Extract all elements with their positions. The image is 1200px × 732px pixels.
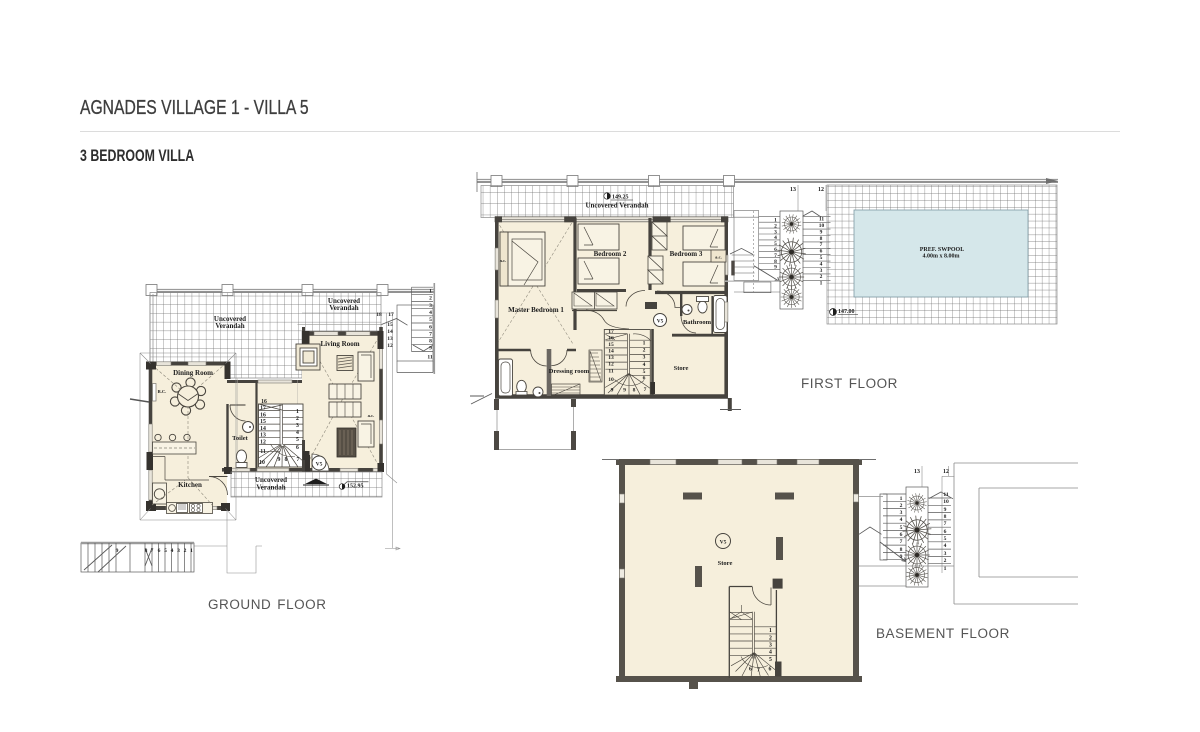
svg-text:15: 15 — [608, 342, 614, 348]
svg-text:13: 13 — [608, 355, 614, 361]
svg-text:2: 2 — [944, 558, 947, 564]
svg-text:14: 14 — [387, 329, 393, 335]
svg-text:15: 15 — [260, 419, 266, 425]
svg-text:1: 1 — [190, 548, 193, 554]
svg-text:Verandah: Verandah — [215, 322, 244, 330]
svg-text:1: 1 — [769, 628, 772, 634]
svg-text:V5: V5 — [657, 319, 664, 325]
svg-text:9: 9 — [944, 507, 947, 513]
svg-text:10: 10 — [259, 460, 265, 466]
svg-text:9: 9 — [429, 346, 432, 352]
svg-text:2: 2 — [643, 348, 646, 354]
svg-text:3: 3 — [900, 510, 903, 516]
svg-text:11: 11 — [943, 492, 948, 498]
svg-text:3: 3 — [177, 548, 180, 554]
svg-text:1: 1 — [429, 289, 432, 295]
svg-text:9: 9 — [820, 229, 823, 235]
svg-text:9: 9 — [774, 265, 777, 271]
svg-text:4: 4 — [429, 310, 432, 316]
svg-text:4: 4 — [643, 362, 646, 368]
svg-text:3: 3 — [643, 355, 646, 361]
svg-text:a.c.: a.c. — [715, 255, 722, 260]
svg-text:9: 9 — [278, 457, 281, 463]
svg-text:18: 18 — [376, 312, 382, 318]
svg-text:Bedroom 3: Bedroom 3 — [670, 250, 703, 258]
svg-text:Bedroom 2: Bedroom 2 — [594, 250, 627, 258]
svg-text:Verandah: Verandah — [329, 304, 358, 312]
svg-text:6: 6 — [900, 532, 903, 538]
svg-text:13: 13 — [914, 469, 920, 475]
svg-text:3: 3 — [429, 303, 432, 309]
svg-text:4: 4 — [944, 543, 947, 549]
svg-text:5: 5 — [820, 255, 823, 261]
svg-text:6: 6 — [820, 249, 823, 255]
svg-text:9: 9 — [611, 388, 614, 394]
svg-text:2: 2 — [429, 296, 432, 302]
svg-text:8: 8 — [633, 388, 636, 394]
svg-text:a.c.: a.c. — [368, 413, 375, 418]
svg-text:7: 7 — [900, 539, 903, 545]
svg-text:Toilet: Toilet — [232, 435, 248, 442]
svg-text:11: 11 — [260, 449, 266, 455]
svg-text:14: 14 — [608, 348, 614, 354]
svg-text:9: 9 — [623, 388, 626, 394]
svg-text:6: 6 — [944, 529, 947, 535]
svg-text:12: 12 — [818, 187, 824, 193]
svg-text:6: 6 — [769, 667, 772, 673]
svg-text:2: 2 — [820, 274, 823, 280]
svg-text:Store: Store — [674, 365, 689, 372]
svg-text:8: 8 — [820, 236, 823, 242]
svg-text:14: 14 — [260, 426, 266, 432]
svg-text:8: 8 — [900, 547, 903, 553]
svg-text:8: 8 — [145, 548, 148, 554]
svg-text:3: 3 — [296, 423, 299, 429]
svg-text:12: 12 — [943, 469, 949, 475]
svg-text:6: 6 — [158, 548, 161, 554]
svg-text:3: 3 — [769, 643, 772, 649]
svg-text:10: 10 — [819, 223, 825, 229]
svg-text:147.00: 147.00 — [838, 309, 855, 315]
svg-text:13: 13 — [260, 433, 266, 439]
svg-text:13: 13 — [790, 187, 796, 193]
svg-text:Living Room: Living Room — [320, 340, 359, 348]
svg-text:7: 7 — [944, 521, 947, 527]
svg-text:9: 9 — [900, 554, 903, 560]
svg-text:12: 12 — [608, 361, 614, 367]
svg-text:8: 8 — [429, 339, 432, 345]
svg-text:4: 4 — [820, 261, 823, 267]
svg-text:17: 17 — [388, 312, 394, 318]
svg-text:7: 7 — [820, 242, 823, 248]
svg-text:1: 1 — [820, 281, 823, 287]
svg-text:V5: V5 — [720, 540, 727, 546]
svg-text:Master Bedroom 1: Master Bedroom 1 — [508, 306, 564, 314]
svg-text:7: 7 — [429, 331, 432, 337]
svg-text:11: 11 — [819, 217, 824, 223]
svg-text:16: 16 — [608, 335, 614, 341]
svg-text:6: 6 — [749, 667, 752, 673]
svg-text:11: 11 — [608, 368, 613, 374]
svg-text:Bathroom: Bathroom — [683, 319, 712, 326]
svg-text:1: 1 — [944, 566, 947, 572]
svg-text:2: 2 — [296, 416, 299, 422]
svg-text:4: 4 — [296, 430, 299, 436]
svg-text:6: 6 — [296, 445, 299, 451]
svg-text:5: 5 — [769, 657, 772, 663]
svg-text:10: 10 — [608, 377, 614, 383]
svg-text:17: 17 — [260, 406, 266, 412]
svg-text:Kitchen: Kitchen — [178, 481, 202, 489]
svg-text:5: 5 — [944, 536, 947, 542]
svg-text:5: 5 — [429, 317, 432, 323]
svg-text:15: 15 — [387, 322, 393, 328]
svg-text:149.25: 149.25 — [612, 195, 629, 201]
svg-text:12: 12 — [260, 440, 266, 446]
svg-text:Store: Store — [718, 560, 733, 567]
svg-text:17: 17 — [608, 329, 614, 335]
svg-text:6: 6 — [643, 376, 646, 382]
svg-text:5: 5 — [164, 548, 167, 554]
svg-text:10: 10 — [943, 499, 949, 505]
svg-text:5: 5 — [900, 525, 903, 531]
svg-text:152.95: 152.95 — [347, 484, 364, 490]
svg-text:Verandah: Verandah — [256, 484, 285, 492]
svg-text:a.c.: a.c. — [500, 258, 507, 263]
svg-text:4: 4 — [171, 548, 174, 554]
svg-text:B.C.: B.C. — [158, 389, 167, 394]
svg-text:Dressing room: Dressing room — [549, 368, 590, 375]
svg-text:6: 6 — [429, 324, 432, 330]
svg-text:5: 5 — [643, 369, 646, 375]
svg-text:PREF. SWPOOL: PREF. SWPOOL — [920, 247, 964, 253]
svg-text:5: 5 — [296, 437, 299, 443]
svg-text:7: 7 — [297, 457, 300, 463]
svg-text:1: 1 — [900, 496, 903, 502]
svg-text:9: 9 — [116, 548, 119, 554]
svg-text:12: 12 — [387, 343, 393, 349]
svg-text:3: 3 — [820, 268, 823, 274]
svg-text:2: 2 — [900, 503, 903, 509]
svg-text:V5: V5 — [316, 462, 323, 468]
svg-text:4: 4 — [769, 650, 772, 656]
svg-text:3: 3 — [944, 551, 947, 557]
svg-text:Dining Room: Dining Room — [173, 369, 213, 377]
svg-text:11: 11 — [427, 355, 432, 361]
svg-text:1: 1 — [296, 409, 299, 415]
svg-text:4.00m x 8.00m: 4.00m x 8.00m — [923, 254, 960, 260]
svg-text:7: 7 — [151, 548, 154, 554]
svg-text:16: 16 — [260, 412, 266, 418]
svg-text:8: 8 — [944, 514, 947, 520]
svg-text:16: 16 — [261, 399, 267, 405]
svg-text:7: 7 — [644, 387, 647, 393]
svg-text:4: 4 — [900, 517, 903, 523]
svg-text:13: 13 — [387, 336, 393, 342]
svg-text:1: 1 — [643, 341, 646, 347]
svg-text:2: 2 — [184, 548, 187, 554]
svg-text:2: 2 — [769, 636, 772, 642]
svg-text:7: 7 — [757, 668, 760, 674]
svg-text:8: 8 — [285, 457, 288, 463]
svg-text:Uncovered Verandah: Uncovered Verandah — [585, 202, 648, 210]
